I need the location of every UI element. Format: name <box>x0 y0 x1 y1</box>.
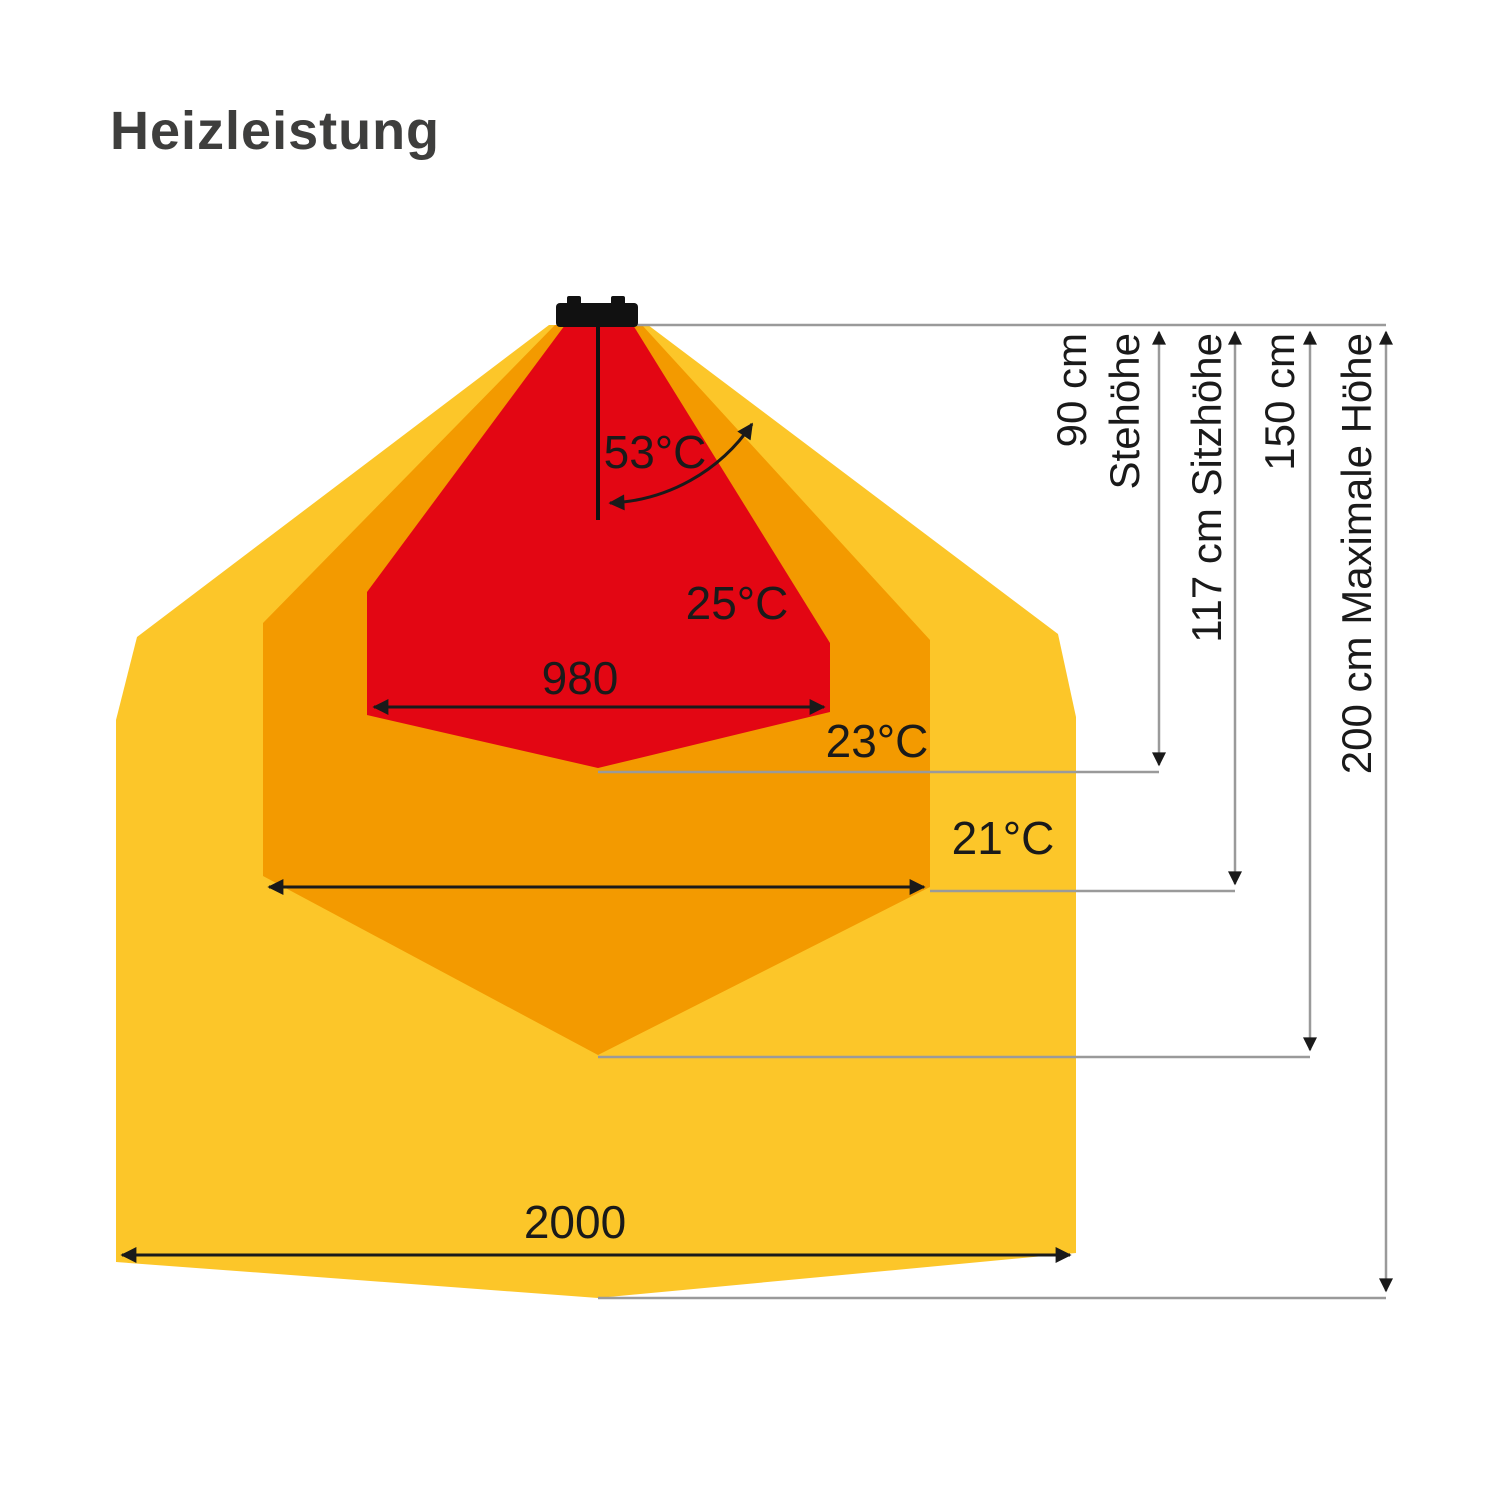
page-title: Heizleistung <box>110 100 440 162</box>
label-red-width-980: 980 <box>542 651 619 705</box>
heating-zone-diagram: Heizleistung 53°C 25°C 980 23°C 21°C 200… <box>0 0 1500 1500</box>
label-red-temp-25c: 25°C <box>686 576 789 630</box>
label-angle-53c: 53°C <box>604 425 707 479</box>
height-label-90cm-stehhoehe: 90 cm Stehöhe <box>1045 333 1151 573</box>
height-label-117cm-sitzhoehe: 117 cm Sitzhöhe <box>1180 333 1233 693</box>
height-label-200cm-maximale-hoehe: 200 cm Maximale Höhe <box>1330 333 1383 813</box>
label-orange-temp-23c: 23°C <box>826 714 929 768</box>
height-label-stehhoehe: Stehöhe <box>1098 333 1151 573</box>
height-label-90cm: 90 cm <box>1045 333 1098 573</box>
height-label-150cm: 150 cm <box>1253 333 1306 483</box>
label-yellow-width-2000: 2000 <box>524 1195 626 1249</box>
label-yellow-temp-21c: 21°C <box>952 811 1055 865</box>
diagram-graphics <box>0 0 1500 1500</box>
heater-icon <box>556 296 638 327</box>
